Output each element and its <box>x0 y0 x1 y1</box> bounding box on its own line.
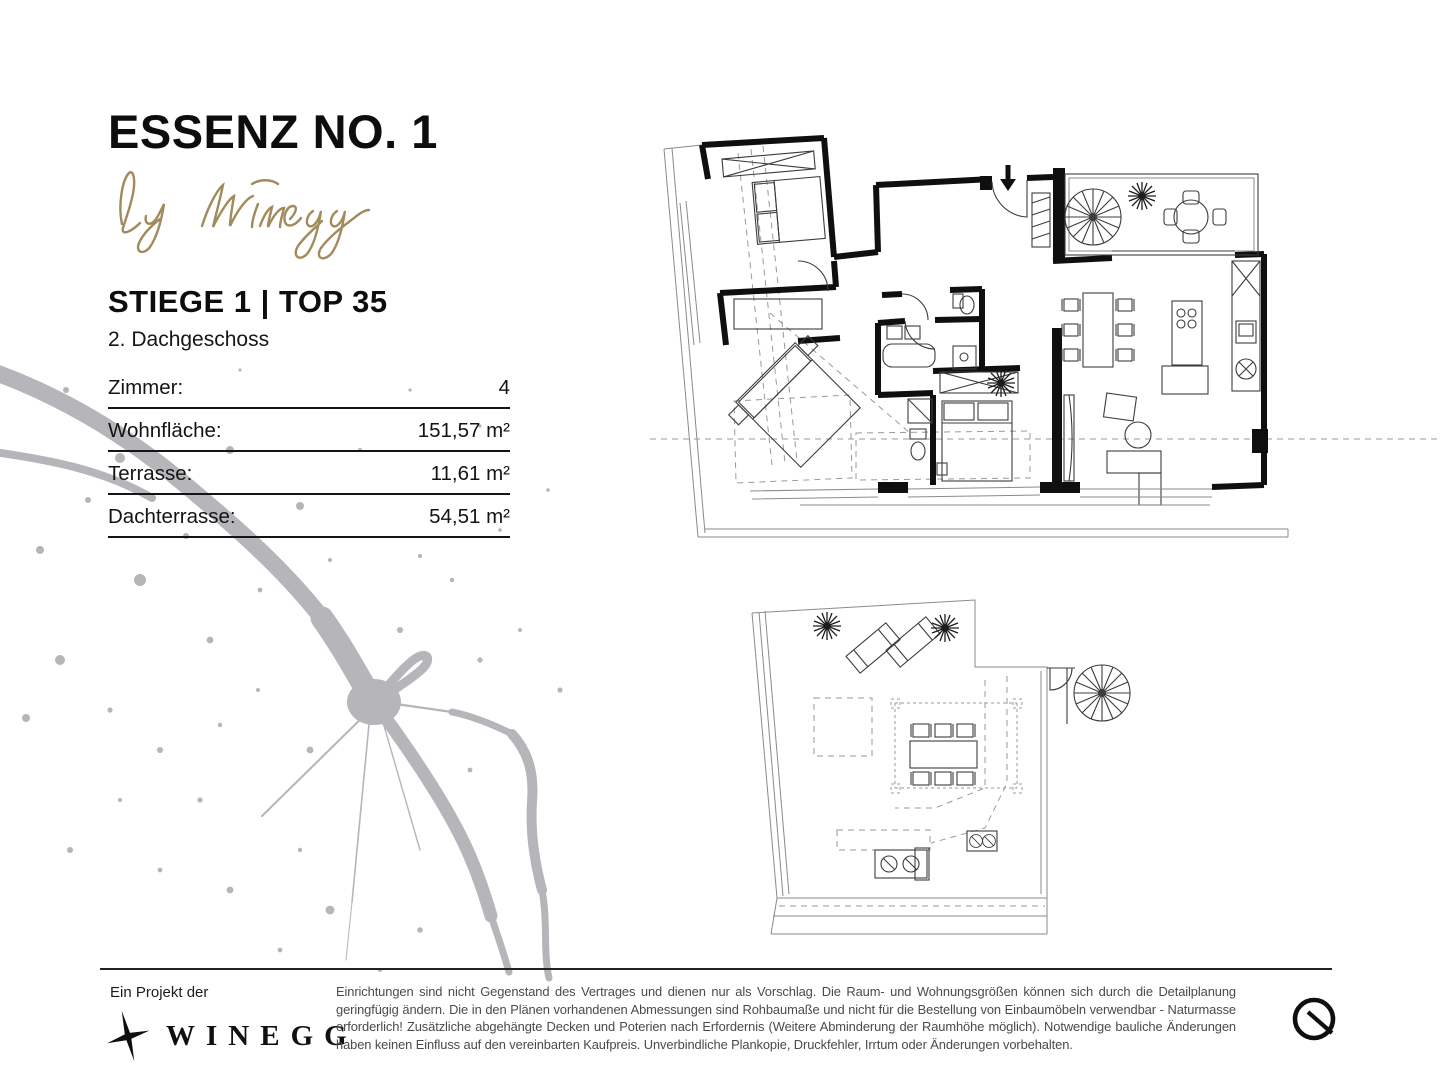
plant-icon <box>1128 182 1156 210</box>
coat-closet <box>1032 193 1050 247</box>
roof-walkway <box>837 676 1007 850</box>
row-label: Wohnfläche: <box>108 419 222 443</box>
living-room <box>1064 366 1208 505</box>
roof-dining-set <box>910 724 977 785</box>
row-label: Dachterrasse: <box>108 505 236 529</box>
bedroom-left <box>726 333 870 477</box>
bottom-windows <box>750 487 1212 505</box>
winegg-script-logo: by Winegg <box>106 160 386 265</box>
upper-terrace <box>1065 174 1258 255</box>
bedroom3 <box>937 401 1012 481</box>
kitchen <box>1172 261 1260 391</box>
table-row: Terrasse: 11,61 m² <box>108 452 510 495</box>
main-floor-plan <box>650 133 1440 557</box>
floor-label: 2. Dachgeschoss <box>108 328 269 352</box>
roof-terrace-plan <box>745 598 1145 950</box>
plant-icon <box>813 612 959 642</box>
footer-divider <box>100 968 1332 970</box>
table-row: Wohnfläche: 151,57 m² <box>108 409 510 452</box>
row-label: Terrasse: <box>108 462 192 486</box>
project-label: Ein Projekt der <box>110 984 208 1001</box>
skylight-box <box>967 831 997 851</box>
row-value: 151,57 m² <box>418 419 510 443</box>
row-label: Zimmer: <box>108 376 183 400</box>
table-row: Zimmer: 4 <box>108 366 510 409</box>
roof-dashed-lines <box>650 146 1440 483</box>
brand-title: ESSENZ NO. 1 <box>108 104 438 159</box>
winegg-wordmark: WINEGG <box>166 1020 358 1053</box>
apartment-walls <box>702 138 1264 487</box>
north-arrow-icon <box>1280 992 1350 1064</box>
room2-sideboard <box>734 299 822 329</box>
spiral-staircase-icon <box>1047 665 1130 724</box>
entrance-arrow-icon <box>1000 165 1016 191</box>
row-value: 11,61 m² <box>431 462 510 486</box>
disclaimer-text: Einrichtungen sind nicht Gegenstand des … <box>336 983 1236 1053</box>
bedroom1 <box>722 151 828 291</box>
row-value: 54,51 m² <box>429 505 510 529</box>
details-table: Zimmer: 4 Wohnfläche: 151,57 m² Terrasse… <box>108 366 510 538</box>
winegg-script-icon <box>106 160 386 260</box>
row-value: 4 <box>499 376 510 400</box>
skylight-box <box>875 848 929 880</box>
wc <box>902 294 974 320</box>
winegg-star-icon <box>104 1008 152 1064</box>
sun-loungers <box>846 617 940 673</box>
spiral-staircase-icon <box>1065 189 1121 245</box>
roof-dashed-square <box>814 698 872 756</box>
bathroom2 <box>908 399 932 460</box>
winegg-logo: WINEGG <box>104 1008 358 1064</box>
bathroom <box>883 321 976 369</box>
terrace-table <box>1164 191 1226 243</box>
unit-heading: STIEGE 1 | TOP 35 <box>108 284 388 320</box>
dining-set <box>1062 293 1134 367</box>
plant-icon <box>987 369 1015 397</box>
table-row: Dachterrasse: 54,51 m² <box>108 495 510 538</box>
